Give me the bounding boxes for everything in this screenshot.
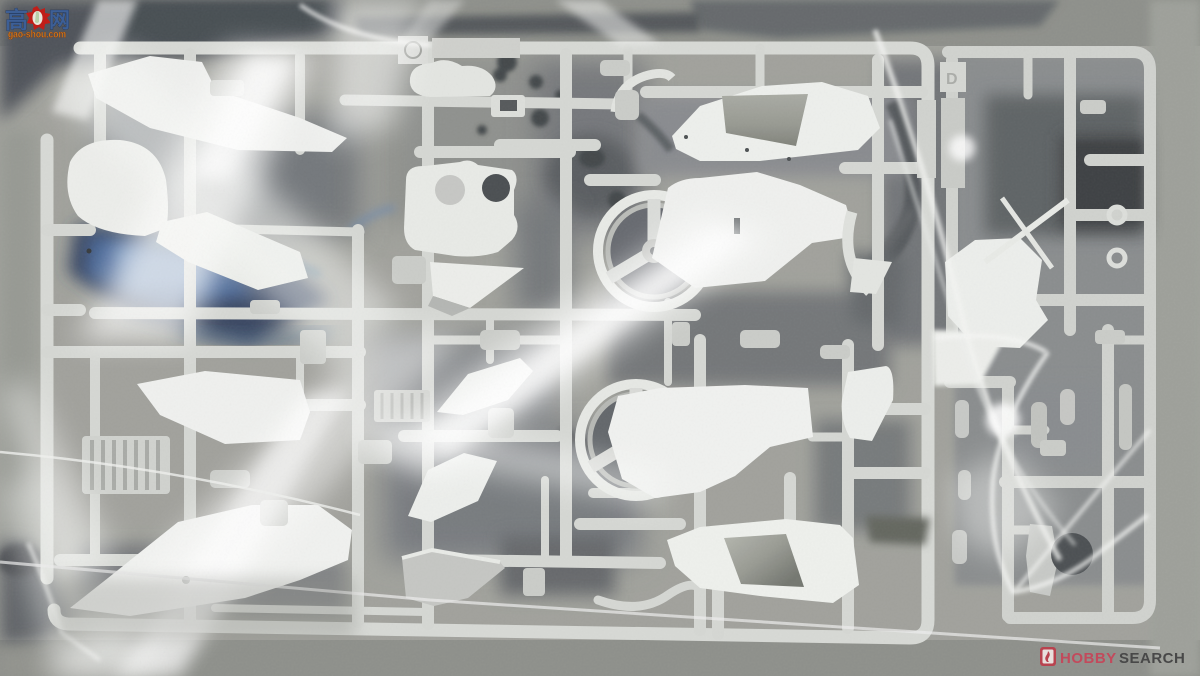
svg-text:SEARCH: SEARCH — [1119, 650, 1185, 667]
svg-text:gao-shou.com: gao-shou.com — [8, 30, 66, 41]
svg-text:HOBBY: HOBBY — [1060, 650, 1117, 667]
